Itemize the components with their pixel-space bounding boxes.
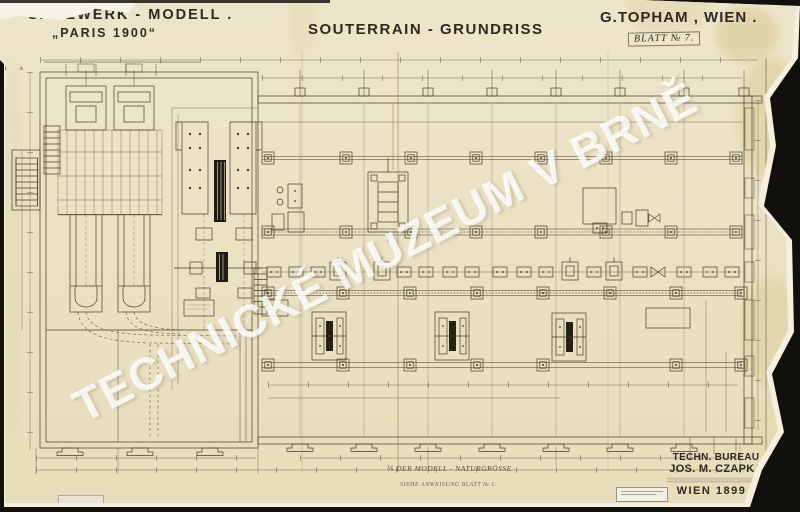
scanned-drawing-sheet: SÄGEWERK - MODELL . „PARIS 1900“ SOUTERR… xyxy=(0,0,800,512)
main-hall xyxy=(258,58,766,470)
axis-marks: A A xyxy=(3,66,29,72)
machine-row xyxy=(262,257,742,280)
inventory-sticker xyxy=(616,487,668,502)
scale-note-line1: ⅕ DER MODELL - NATURGRÖSSE xyxy=(386,464,512,473)
paper: SÄGEWERK - MODELL . „PARIS 1900“ SOUTERR… xyxy=(0,0,800,512)
scale-note-line2: SIEHE ANWEISUNG BLATT № 1. xyxy=(400,482,497,488)
author-name: G.TOPHAM , WIEN . xyxy=(600,9,758,26)
plan-linework xyxy=(0,0,800,512)
stamp-smudge xyxy=(667,478,764,483)
sheet-number: BLATT № 7. xyxy=(628,31,701,46)
drawing-title: SOUTERRAIN - GRUNDRISS xyxy=(308,21,544,38)
project-subtitle: „PARIS 1900“ xyxy=(52,26,157,40)
hall-machines xyxy=(262,158,690,361)
title-block-bureau: TECHN. BUREAU xyxy=(665,452,767,463)
scan-edge-shadow xyxy=(0,0,330,3)
title-block-name: JOS. M. CZAPKA xyxy=(665,463,767,475)
line-shafts xyxy=(262,152,747,371)
transmission-tower xyxy=(172,108,267,390)
